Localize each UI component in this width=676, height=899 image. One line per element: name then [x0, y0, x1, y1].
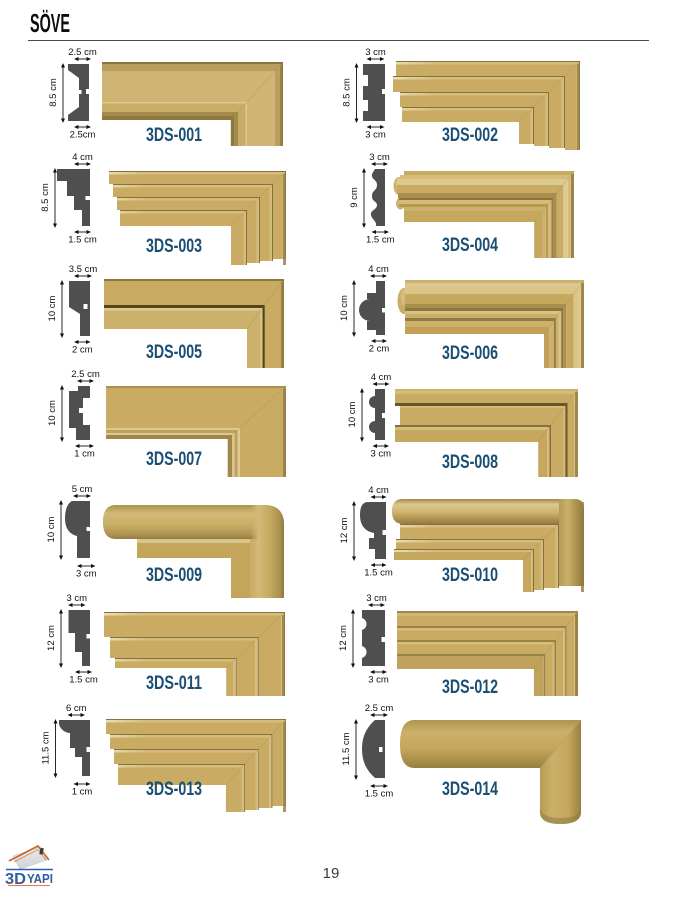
svg-text:4 cm: 4 cm	[368, 485, 389, 496]
svg-text:1 cm: 1 cm	[72, 787, 93, 798]
svg-text:2 cm: 2 cm	[72, 345, 93, 356]
svg-text:1.5 cm: 1.5 cm	[366, 235, 395, 246]
svg-text:3DS-012: 3DS-012	[442, 677, 498, 698]
svg-text:4 cm: 4 cm	[368, 264, 389, 275]
svg-text:3DS-003: 3DS-003	[146, 236, 202, 257]
svg-text:3 cm: 3 cm	[368, 675, 389, 686]
svg-text:10 cm: 10 cm	[46, 516, 57, 542]
svg-text:3DS-008: 3DS-008	[442, 452, 498, 473]
svg-text:8.5 cm: 8.5 cm	[40, 183, 51, 212]
svg-text:YAPI: YAPI	[27, 871, 53, 886]
svg-text:8.5 cm: 8.5 cm	[342, 78, 353, 107]
svg-text:5 cm: 5 cm	[72, 484, 93, 495]
svg-text:3DS-011: 3DS-011	[146, 673, 202, 694]
svg-text:3 cm: 3 cm	[370, 449, 391, 460]
svg-text:2.5 cm: 2.5 cm	[68, 47, 97, 58]
svg-text:2.5cm: 2.5cm	[70, 130, 96, 141]
svg-text:10 cm: 10 cm	[47, 295, 58, 321]
svg-text:12 cm: 12 cm	[338, 625, 349, 651]
svg-text:12 cm: 12 cm	[339, 517, 350, 543]
svg-text:12 cm: 12 cm	[46, 625, 57, 651]
svg-text:10 cm: 10 cm	[47, 400, 58, 426]
svg-text:3DS-002: 3DS-002	[442, 125, 498, 146]
svg-text:2.5 cm: 2.5 cm	[365, 703, 394, 714]
svg-text:3DS-005: 3DS-005	[146, 342, 202, 363]
svg-text:1.5 cm: 1.5 cm	[364, 568, 393, 579]
svg-text:11.5 cm: 11.5 cm	[41, 731, 52, 764]
svg-text:3 cm: 3 cm	[365, 47, 386, 58]
svg-text:1.5 cm: 1.5 cm	[68, 235, 97, 246]
svg-text:3DS-014: 3DS-014	[442, 779, 498, 800]
svg-text:8.5 cm: 8.5 cm	[48, 78, 59, 107]
svg-text:3DS-006: 3DS-006	[442, 343, 498, 364]
svg-text:2.5 cm: 2.5 cm	[71, 369, 100, 380]
svg-text:3 cm: 3 cm	[366, 593, 387, 604]
svg-text:1 cm: 1 cm	[74, 449, 95, 460]
svg-text:3 cm: 3 cm	[369, 152, 390, 163]
svg-text:2 cm: 2 cm	[369, 344, 390, 355]
svg-text:10 cm: 10 cm	[339, 295, 350, 321]
svg-text:3 cm: 3 cm	[76, 569, 97, 580]
svg-text:3DS-007: 3DS-007	[146, 449, 202, 470]
svg-text:11.5 cm: 11.5 cm	[341, 732, 352, 765]
svg-text:4 cm: 4 cm	[72, 152, 93, 163]
svg-text:1.5 cm: 1.5 cm	[365, 789, 394, 800]
svg-text:9 cm: 9 cm	[349, 187, 360, 208]
svg-text:4 cm: 4 cm	[371, 372, 392, 383]
svg-text:3DS-001: 3DS-001	[146, 125, 202, 146]
svg-text:3DS-004: 3DS-004	[442, 235, 498, 256]
svg-text:3 cm: 3 cm	[365, 130, 386, 141]
svg-text:6 cm: 6 cm	[66, 703, 87, 714]
svg-text:3DS-010: 3DS-010	[442, 565, 498, 586]
svg-text:3.5 cm: 3.5 cm	[69, 264, 98, 275]
svg-text:3DS-009: 3DS-009	[146, 565, 202, 586]
svg-text:19: 19	[323, 865, 340, 882]
svg-text:3DS-013: 3DS-013	[146, 779, 202, 800]
svg-text:1.5 cm: 1.5 cm	[69, 675, 98, 686]
svg-text:10 cm: 10 cm	[347, 401, 358, 427]
svg-text:SÖVE: SÖVE	[30, 8, 70, 38]
svg-text:3 cm: 3 cm	[66, 593, 87, 604]
